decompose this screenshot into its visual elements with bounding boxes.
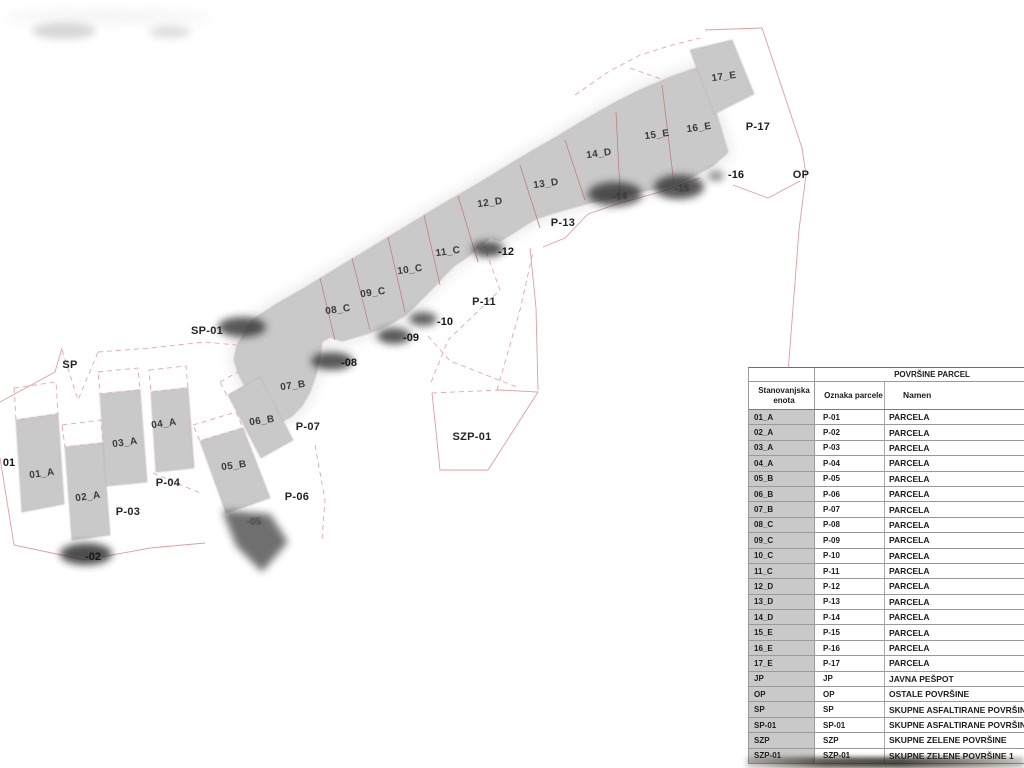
cell-namen: PARCELA	[885, 610, 1024, 624]
cell-namen: PARCELA	[885, 549, 1024, 563]
cell-enota: OP	[749, 687, 815, 701]
table-row: 01_AP-01PARCELA	[749, 410, 1024, 425]
cell-namen: PARCELA	[885, 625, 1024, 639]
table-row: 06_BP-06PARCELA	[749, 487, 1024, 502]
table-title: POVRŠINE PARCEL	[815, 368, 1024, 381]
cell-namen: SKUPNE ASFALTIRANE POVRŠINE	[885, 702, 1024, 716]
table-row: 14_DP-14PARCELA	[749, 610, 1024, 625]
cell-oznaka: P-15	[815, 625, 885, 639]
col-header-enota: Stanovanjska enota	[749, 382, 815, 409]
bottom-edge-shadow	[746, 757, 1024, 768]
cell-oznaka: P-14	[815, 610, 885, 624]
cell-enota: 10_C	[749, 549, 815, 563]
cell-oznaka: P-06	[815, 487, 885, 501]
table-row: SPSPSKUPNE ASFALTIRANE POVRŠINE	[749, 702, 1024, 717]
table-row: 10_CP-10PARCELA	[749, 549, 1024, 564]
smudge-p15	[654, 175, 704, 199]
cell-oznaka: P-08	[815, 518, 885, 532]
cell-enota: 04_A	[749, 456, 815, 470]
cell-oznaka: P-11	[815, 564, 885, 578]
table-row: 03_AP-03PARCELA	[749, 441, 1024, 456]
cell-namen: PARCELA	[885, 518, 1024, 532]
cell-enota: JP	[749, 672, 815, 686]
table-row: SP-01SP-01SKUPNE ASFALTIRANE POVRŠINE	[749, 718, 1024, 733]
cell-namen: PARCELA	[885, 441, 1024, 455]
table-row: 16_EP-16PARCELA	[749, 641, 1024, 656]
cell-namen: SKUPNE ASFALTIRANE POVRŠINE	[885, 718, 1024, 732]
cell-oznaka: P-07	[815, 502, 885, 516]
cell-enota: 08_C	[749, 518, 815, 532]
cell-oznaka: P-10	[815, 549, 885, 563]
smudge-p16	[708, 171, 724, 181]
boundary-p17	[733, 181, 800, 198]
table-row: 17_EP-17PARCELA	[749, 656, 1024, 671]
cell-enota: SP-01	[749, 718, 815, 732]
cell-namen: JAVNA PEŠPOT	[885, 672, 1024, 686]
cell-oznaka: P-03	[815, 441, 885, 455]
col-header-namen: Namen	[885, 382, 1024, 409]
cell-namen: PARCELA	[885, 641, 1024, 655]
cell-oznaka: SP	[815, 702, 885, 716]
smudge-p14	[588, 182, 642, 206]
smudge-p10	[409, 312, 437, 326]
building-04A	[151, 388, 194, 472]
table-row: 09_CP-09PARCELA	[749, 533, 1024, 548]
cell-oznaka: P-16	[815, 641, 885, 655]
col-header-oznaka: Oznaka parcele	[815, 382, 885, 409]
table-row: 13_DP-13PARCELA	[749, 595, 1024, 610]
table-title-spacer	[749, 368, 815, 381]
smudge-p12	[472, 241, 504, 257]
boundary-szp-stem	[530, 248, 538, 390]
table-row: 04_AP-04PARCELA	[749, 456, 1024, 471]
cell-oznaka: OP	[815, 687, 885, 701]
cell-oznaka: P-01	[815, 410, 885, 424]
cell-oznaka: P-13	[815, 595, 885, 609]
table-row: JPJPJAVNA PEŠPOT	[749, 672, 1024, 687]
smudge-p09	[377, 328, 411, 344]
cell-oznaka: P-09	[815, 533, 885, 547]
parcel-table: POVRŠINE PARCEL Stanovanjska enota Oznak…	[748, 367, 1024, 764]
cell-oznaka: P-12	[815, 579, 885, 593]
cell-namen: PARCELA	[885, 533, 1024, 547]
cell-enota: 13_D	[749, 595, 815, 609]
building-02A	[65, 443, 110, 540]
building-03A	[100, 390, 147, 486]
table-row: 15_EP-15PARCELA	[749, 625, 1024, 640]
smudge-sp01	[218, 317, 266, 337]
cell-namen: PARCELA	[885, 502, 1024, 516]
table-header-row: Stanovanjska enota Oznaka parcele Namen	[749, 382, 1024, 410]
cell-enota: 16_E	[749, 641, 815, 655]
cell-enota: 14_D	[749, 610, 815, 624]
cell-namen: SKUPNE ZELENE POVRŠINE	[885, 733, 1024, 747]
cell-namen: PARCELA	[885, 487, 1024, 501]
cell-namen: PARCELA	[885, 410, 1024, 424]
cell-oznaka: P-17	[815, 656, 885, 670]
cell-enota: 11_C	[749, 564, 815, 578]
boundary-west	[0, 348, 62, 402]
cell-enota: 12_D	[749, 579, 815, 593]
building-01A	[16, 414, 64, 512]
site-plan-screenshot: 01_A02_A03_A04_A05_B06_B07_B08_C09_C10_C…	[0, 0, 1024, 768]
cell-oznaka: P-02	[815, 425, 885, 439]
table-row: SZPSZPSKUPNE ZELENE POVRŠINE	[749, 733, 1024, 748]
smudge-p08	[311, 352, 353, 370]
cell-namen: PARCELA	[885, 564, 1024, 578]
table-title-row: POVRŠINE PARCEL	[749, 368, 1024, 382]
table-row: 08_CP-08PARCELA	[749, 518, 1024, 533]
table-row: 05_BP-05PARCELA	[749, 472, 1024, 487]
cell-enota: 05_B	[749, 472, 815, 486]
cell-enota: 06_B	[749, 487, 815, 501]
smudge-p05-triangle	[222, 510, 288, 572]
cell-oznaka: SP-01	[815, 718, 885, 732]
table-row: 02_AP-02PARCELA	[749, 425, 1024, 440]
cell-enota: SZP	[749, 733, 815, 747]
cell-namen: PARCELA	[885, 595, 1024, 609]
table-rows: 01_AP-01PARCELA02_AP-02PARCELA03_AP-03PA…	[749, 410, 1024, 764]
cell-enota: 09_C	[749, 533, 815, 547]
smudge-topleft-2	[149, 26, 191, 38]
cell-enota: 03_A	[749, 441, 815, 455]
cell-namen: PARCELA	[885, 472, 1024, 486]
cell-enota: 01_A	[749, 410, 815, 424]
cell-namen: PARCELA	[885, 425, 1024, 439]
cell-enota: 07_B	[749, 502, 815, 516]
smudge-topleft-1	[32, 23, 96, 39]
szp01-outline	[432, 390, 538, 470]
cell-oznaka: SZP	[815, 733, 885, 747]
cell-enota: SP	[749, 702, 815, 716]
cell-oznaka: P-05	[815, 472, 885, 486]
smudge-topleft-streak	[3, 12, 213, 22]
buildings-layer	[16, 40, 754, 540]
smudge-p02	[60, 543, 112, 565]
cell-oznaka: JP	[815, 672, 885, 686]
cell-oznaka: P-04	[815, 456, 885, 470]
cell-enota: 15_E	[749, 625, 815, 639]
table-row: 11_CP-11PARCELA	[749, 564, 1024, 579]
cell-namen: PARCELA	[885, 579, 1024, 593]
cell-enota: 02_A	[749, 425, 815, 439]
cell-namen: OSTALE POVRŠINE	[885, 687, 1024, 701]
cell-namen: PARCELA	[885, 456, 1024, 470]
table-row: 12_DP-12PARCELA	[749, 579, 1024, 594]
cell-namen: PARCELA	[885, 656, 1024, 670]
cell-enota: 17_E	[749, 656, 815, 670]
table-row: OPOPOSTALE POVRŠINE	[749, 687, 1024, 702]
table-row: 07_BP-07PARCELA	[749, 502, 1024, 517]
